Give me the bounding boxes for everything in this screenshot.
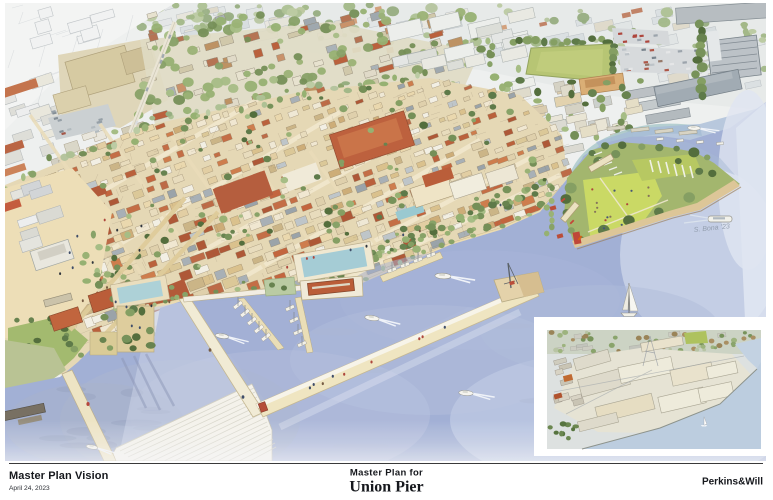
svg-text:Perkins&Will: Perkins&Will (702, 477, 763, 488)
svg-text:Master Plan Vision: Master Plan Vision (9, 470, 109, 482)
svg-text:Master Plan for: Master Plan for (350, 468, 423, 479)
svg-text:Union Pier: Union Pier (349, 479, 423, 496)
svg-text:April 24, 2023: April 24, 2023 (9, 485, 50, 492)
